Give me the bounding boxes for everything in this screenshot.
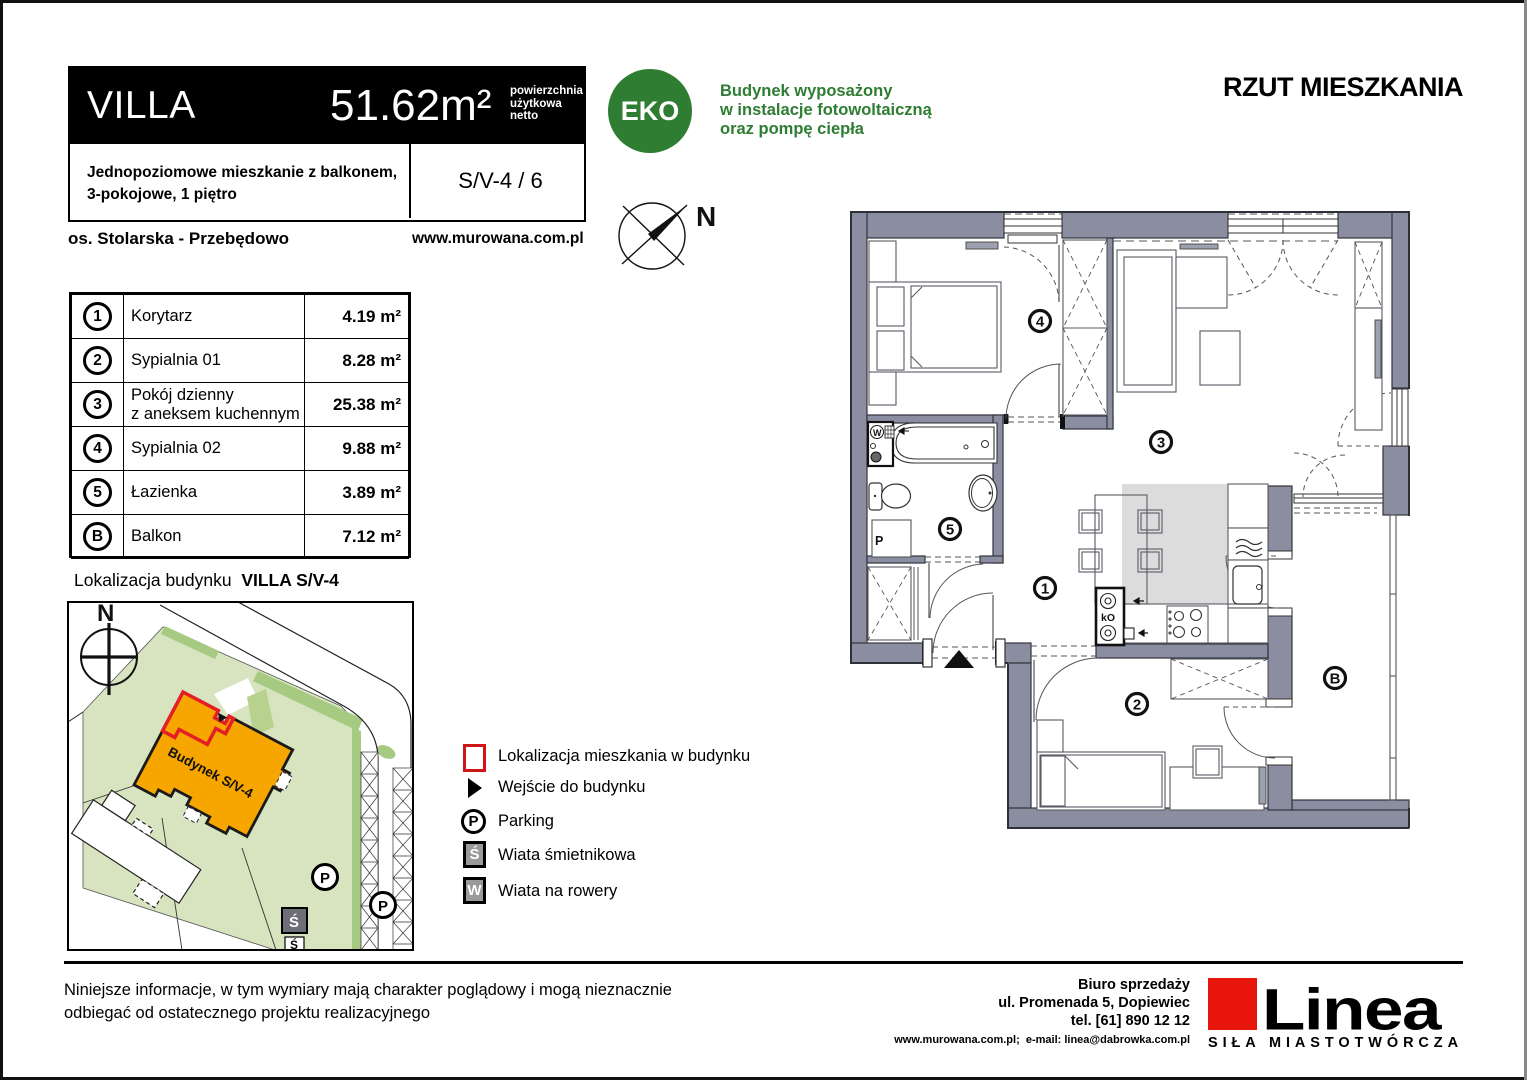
svg-text:N: N	[97, 600, 114, 627]
svg-text:Ś: Ś	[289, 913, 299, 931]
svg-text:3: 3	[1157, 435, 1165, 452]
svg-text:W: W	[873, 428, 882, 438]
svg-text:4: 4	[1036, 314, 1045, 331]
svg-text:P: P	[875, 534, 883, 548]
svg-text:1: 1	[1041, 581, 1049, 598]
svg-text:B: B	[1330, 671, 1341, 688]
svg-text:5: 5	[946, 522, 954, 539]
svg-text:P: P	[320, 870, 330, 887]
svg-text:2: 2	[1133, 697, 1141, 714]
svg-text:N: N	[696, 201, 716, 232]
svg-text:kO: kO	[1101, 612, 1115, 624]
svg-text:P: P	[378, 898, 388, 915]
